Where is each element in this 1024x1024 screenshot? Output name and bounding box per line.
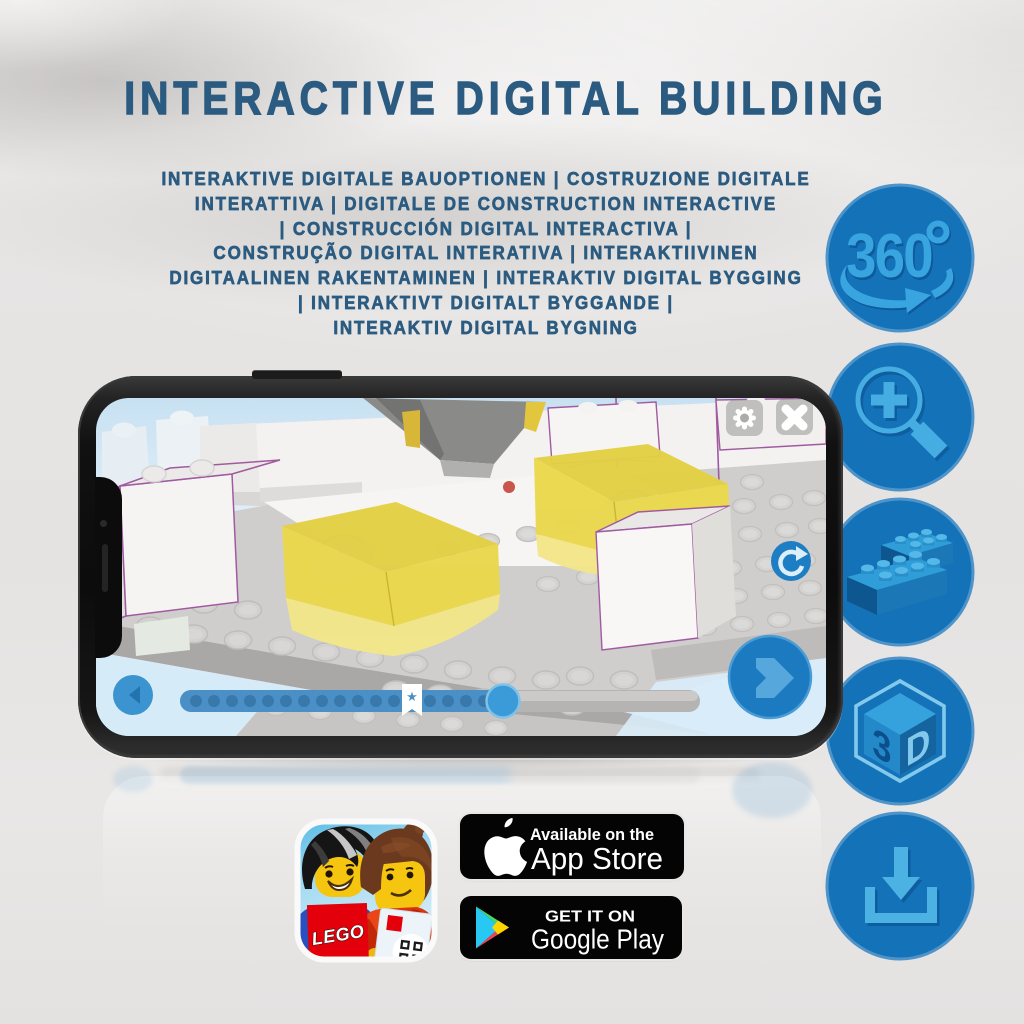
svg-text:★: ★ [406, 689, 418, 704]
svg-text:App Store: App Store [531, 841, 663, 876]
svg-text:Google Play: Google Play [531, 924, 664, 955]
svg-text:360: 360 [846, 222, 932, 291]
